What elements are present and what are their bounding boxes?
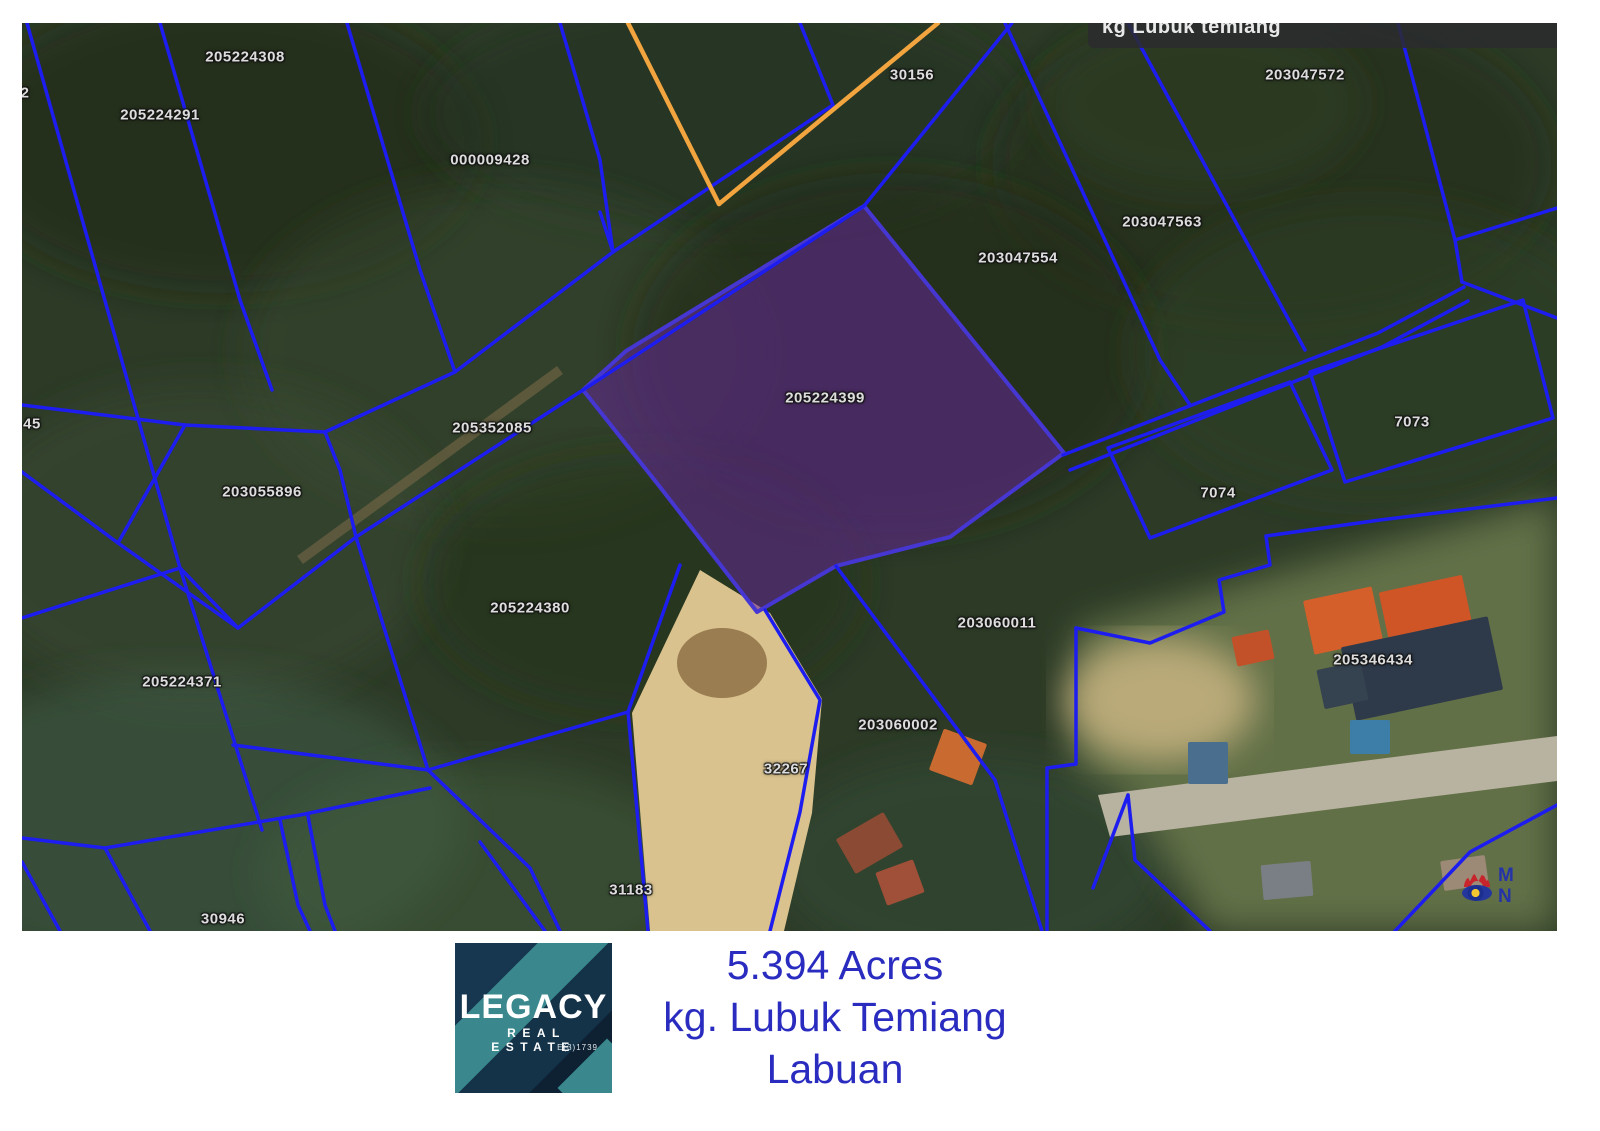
dirt-patch bbox=[677, 628, 767, 698]
parcel-number-label: 30946 bbox=[201, 911, 245, 928]
logo-name: LEGACY bbox=[455, 988, 612, 1027]
listing-page: { "map": { "region_label": "kg Lubuk tem… bbox=[0, 0, 1600, 1131]
parcel-number-label: 45 bbox=[23, 416, 41, 433]
parcel-number-label: 203060011 bbox=[958, 615, 1037, 632]
map-search-result-label: kg Lubuk temiang bbox=[1088, 23, 1557, 39]
building bbox=[1350, 720, 1390, 754]
parcel-number-label: 205224308 bbox=[205, 49, 285, 66]
map-provider-letters: MN bbox=[1498, 865, 1515, 907]
listing-territory: Labuan bbox=[635, 1043, 1035, 1095]
parcel-number-label: 30156 bbox=[890, 67, 934, 84]
parcel-number-label: 205224371 bbox=[142, 674, 222, 691]
building bbox=[1188, 742, 1228, 784]
listing-summary: 5.394 Acres kg. Lubuk Temiang Labuan bbox=[635, 939, 1035, 1095]
parcel-number-label: 203060002 bbox=[858, 717, 938, 734]
parcel-number-label: 203047563 bbox=[1122, 214, 1202, 231]
map-provider-emblem-icon bbox=[1460, 873, 1494, 903]
listing-caption: LEGACY REAL ESTATE E(3)1739 5.394 Acres … bbox=[0, 931, 1600, 1131]
building bbox=[1261, 861, 1314, 900]
parcel-number-label: 203055896 bbox=[222, 484, 302, 501]
legacy-real-estate-logo: LEGACY REAL ESTATE E(3)1739 bbox=[455, 943, 612, 1093]
parcel-number-label: 000009428 bbox=[450, 152, 530, 169]
map-provider-watermark: MN bbox=[1460, 867, 1550, 911]
parcel-number-label: 7074 bbox=[1200, 485, 1235, 502]
map-search-result-bar[interactable]: kg Lubuk temiang bbox=[1088, 23, 1557, 48]
parcel-number-label: 203047554 bbox=[978, 250, 1058, 267]
parcel-number-label: 205346434 bbox=[1333, 652, 1413, 669]
parcel-number-label: 2 bbox=[22, 85, 29, 102]
satellite-map[interactable]: kg Lubuk temiang 22052243082052242910000… bbox=[22, 23, 1557, 931]
emblem-globe-icon bbox=[1462, 885, 1492, 901]
listing-area: 5.394 Acres bbox=[635, 939, 1035, 991]
logo-license-number: E(3)1739 bbox=[557, 1043, 598, 1052]
listing-village: kg. Lubuk Temiang bbox=[635, 991, 1035, 1043]
parcel-number-label: 7073 bbox=[1394, 414, 1429, 431]
parcel-number-label: 205224291 bbox=[120, 107, 200, 124]
parcel-number-label: 32267 bbox=[764, 761, 808, 778]
parcel-number-label: 31183 bbox=[609, 882, 652, 899]
cadastral-overlay bbox=[22, 23, 1557, 931]
parcel-number-label: 205224380 bbox=[490, 600, 570, 617]
parcel-number-label: 205352085 bbox=[452, 420, 532, 437]
parcel-number-label: 205224399 bbox=[785, 390, 865, 407]
parcel-number-label: 203047572 bbox=[1265, 67, 1345, 84]
